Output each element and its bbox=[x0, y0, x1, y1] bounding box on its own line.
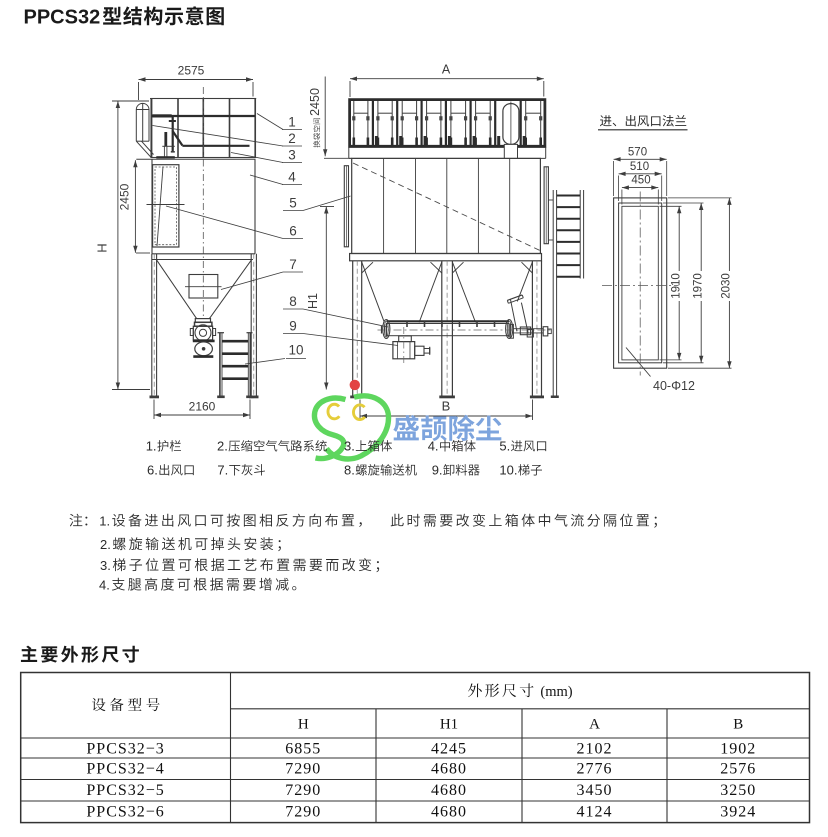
svg-text:6855: 6855 bbox=[285, 740, 321, 757]
svg-text:570: 570 bbox=[628, 146, 647, 158]
svg-text:450: 450 bbox=[631, 175, 650, 187]
svg-text:5: 5 bbox=[289, 196, 297, 211]
svg-text:1902: 1902 bbox=[720, 740, 756, 757]
svg-text:9: 9 bbox=[289, 319, 297, 334]
svg-text:2.: 2. bbox=[100, 537, 111, 552]
svg-text:3: 3 bbox=[288, 148, 296, 163]
svg-text:3.: 3. bbox=[344, 439, 355, 454]
svg-text:2450: 2450 bbox=[117, 183, 131, 210]
svg-text:1910: 1910 bbox=[670, 273, 682, 299]
svg-text:2102: 2102 bbox=[577, 740, 613, 757]
svg-text:2: 2 bbox=[288, 131, 296, 146]
svg-text:PPCS32−6: PPCS32−6 bbox=[86, 803, 164, 820]
svg-text:10: 10 bbox=[288, 343, 303, 358]
svg-text:H1: H1 bbox=[306, 293, 320, 309]
svg-text:10.: 10. bbox=[499, 463, 517, 478]
svg-text:7290: 7290 bbox=[285, 782, 321, 799]
svg-text:PPCS32: PPCS32 bbox=[24, 7, 101, 29]
svg-text:PPCS32−5: PPCS32−5 bbox=[86, 782, 164, 799]
svg-text:510: 510 bbox=[630, 161, 649, 173]
svg-text:3924: 3924 bbox=[720, 803, 756, 820]
svg-text:2450: 2450 bbox=[308, 88, 322, 116]
svg-text:4: 4 bbox=[288, 170, 296, 185]
svg-text:7290: 7290 bbox=[285, 760, 321, 777]
svg-text:3450: 3450 bbox=[577, 782, 613, 799]
svg-text:PPCS32−4: PPCS32−4 bbox=[86, 760, 164, 777]
svg-text:40-Φ12: 40-Φ12 bbox=[653, 379, 695, 393]
svg-text:1.: 1. bbox=[146, 439, 157, 454]
svg-text:8.: 8. bbox=[344, 463, 355, 478]
svg-text:4680: 4680 bbox=[431, 803, 467, 820]
svg-text:PPCS32−3: PPCS32−3 bbox=[86, 740, 164, 757]
svg-text:6: 6 bbox=[289, 224, 297, 239]
svg-text:4.: 4. bbox=[428, 439, 439, 454]
svg-text:5.: 5. bbox=[499, 439, 510, 454]
svg-text:B: B bbox=[733, 717, 743, 733]
svg-text:3.: 3. bbox=[100, 558, 111, 573]
svg-text:1: 1 bbox=[288, 115, 296, 130]
svg-text:3250: 3250 bbox=[720, 782, 756, 799]
svg-text:7.: 7. bbox=[217, 463, 228, 478]
svg-text:4680: 4680 bbox=[431, 760, 467, 777]
svg-text:2776: 2776 bbox=[577, 760, 613, 777]
svg-text:2160: 2160 bbox=[189, 400, 216, 414]
svg-text:A: A bbox=[442, 63, 451, 77]
svg-text:9.: 9. bbox=[432, 463, 443, 478]
svg-text:1.: 1. bbox=[99, 514, 110, 529]
svg-text:8: 8 bbox=[289, 294, 297, 309]
svg-text:7: 7 bbox=[289, 257, 297, 272]
svg-text:4.: 4. bbox=[99, 578, 110, 593]
svg-text:2030: 2030 bbox=[721, 273, 733, 299]
svg-text:H1: H1 bbox=[440, 717, 458, 733]
svg-text:6.: 6. bbox=[147, 463, 158, 478]
svg-text:B: B bbox=[442, 399, 451, 414]
svg-text:4680: 4680 bbox=[431, 782, 467, 799]
svg-text:4124: 4124 bbox=[577, 803, 613, 820]
svg-text:A: A bbox=[589, 717, 600, 733]
svg-text:2575: 2575 bbox=[178, 64, 205, 78]
svg-text:4245: 4245 bbox=[431, 740, 467, 757]
svg-text:2.: 2. bbox=[217, 439, 228, 454]
svg-text:7290: 7290 bbox=[285, 803, 321, 820]
svg-text:H: H bbox=[298, 717, 309, 733]
svg-text:H: H bbox=[95, 243, 110, 252]
svg-text:2576: 2576 bbox=[720, 760, 756, 777]
svg-text:(mm): (mm) bbox=[540, 684, 572, 700]
svg-text:1970: 1970 bbox=[692, 273, 704, 299]
